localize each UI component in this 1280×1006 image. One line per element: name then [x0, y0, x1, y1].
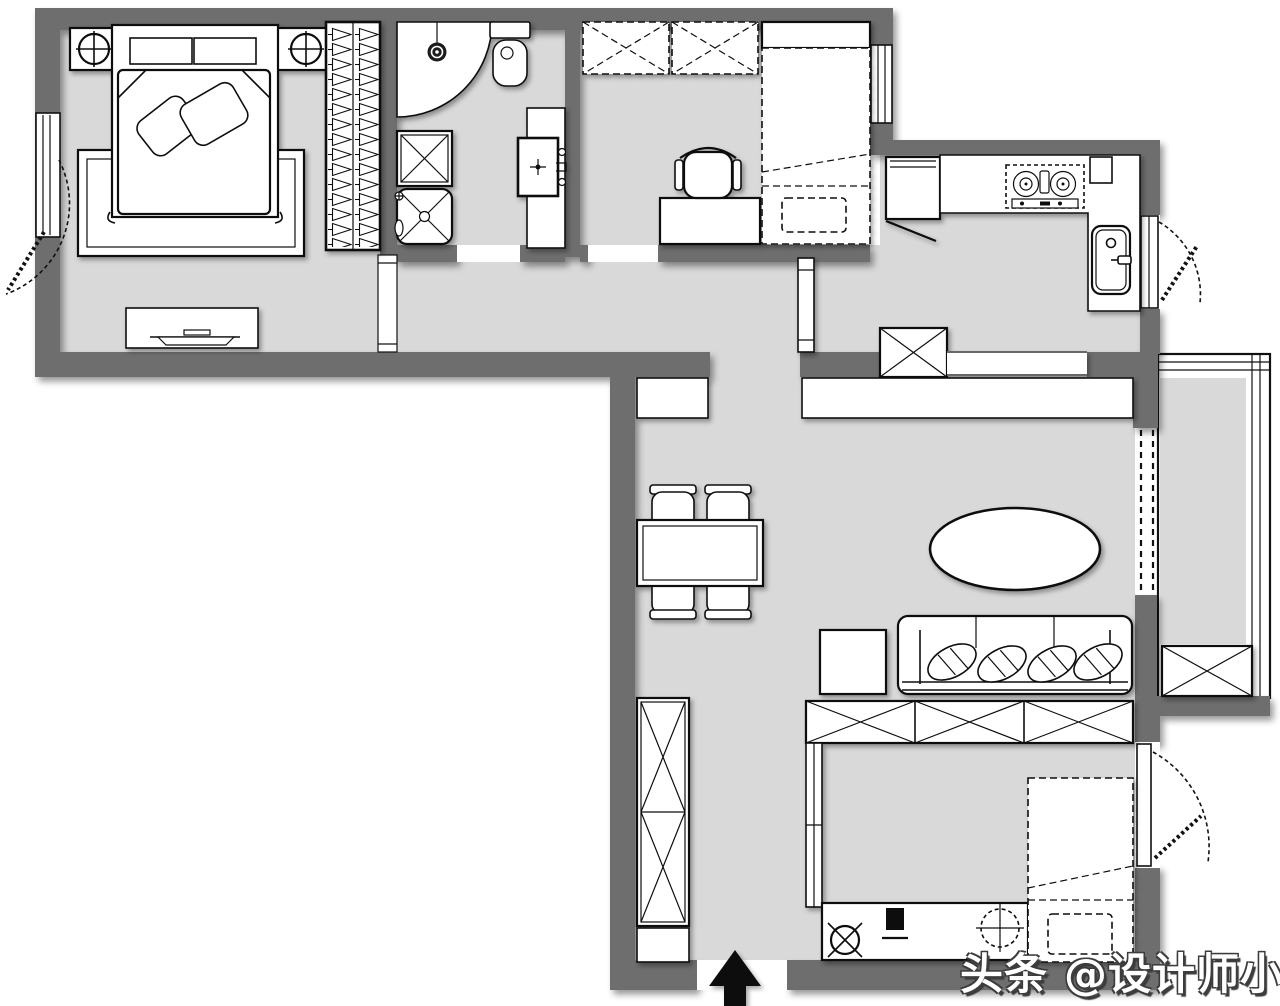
hanger-icons-left [328, 27, 352, 247]
cabinet-top-left [637, 378, 708, 418]
wall-bottom-left [610, 960, 697, 990]
headboard-panel-left [130, 38, 192, 64]
side-table [820, 630, 886, 694]
sofa [898, 616, 1132, 694]
stove-display [1040, 202, 1050, 206]
wall-bedroom2-bottom-right [658, 245, 870, 262]
wall-kitchen-bottom-left [800, 352, 880, 377]
faucet-knob-top [559, 149, 566, 156]
dining-table [637, 520, 763, 586]
balcony-floor [1160, 378, 1246, 644]
wall-bath-bottom-left [397, 245, 457, 262]
bed2-headboard [762, 22, 870, 48]
toilet-icon [493, 40, 527, 86]
wall-kitchen-right-lower [1140, 309, 1160, 354]
balcony [1162, 646, 1252, 696]
monitor-icon [886, 908, 904, 930]
floor-plan-svg [0, 0, 1280, 1006]
drain-icon [395, 220, 403, 236]
wall-kitchen-bottom-right [1087, 352, 1135, 377]
shower-head-center [435, 50, 439, 54]
washing-machine-door [420, 212, 430, 222]
single-bed-3 [1028, 778, 1133, 962]
wall-kitchen-top [870, 140, 1160, 155]
wall-lower-left [610, 352, 635, 990]
master-window [36, 113, 60, 237]
wall-master-bath [380, 8, 397, 257]
bedroom3-door [1137, 744, 1151, 866]
bedroom3-door-swing-arc [1153, 752, 1209, 862]
master-door-opening [378, 255, 397, 352]
toilet-tank [490, 22, 530, 38]
kitchen-door-panel [798, 258, 814, 352]
floor-plan-page: 头条 @设计师小晨 [0, 0, 1280, 1006]
wall-living-balcony [1135, 595, 1157, 698]
toilet-flush [501, 47, 513, 59]
burner-dot [1025, 183, 1028, 186]
kitchen-door-swing-hatch [1162, 246, 1197, 300]
wall-hall-bottom [35, 352, 710, 377]
faucet-knob-bottom [559, 179, 566, 186]
fridge [886, 157, 940, 219]
duvet [118, 70, 270, 214]
wall-lower-right-upper [1135, 698, 1160, 744]
wall-balcony-stub [1133, 352, 1158, 428]
wall-bath-bedroom2 [565, 8, 580, 257]
tv-base [184, 330, 210, 335]
closet [326, 22, 380, 250]
single-bed-2 [762, 48, 870, 244]
office-chair-2 [675, 148, 741, 198]
burner-dot [1062, 183, 1065, 186]
entry-bench [637, 928, 689, 962]
balcony-sliding-door [1141, 430, 1153, 595]
tv-cabinet-strip [806, 701, 1133, 743]
wall-kitchen-right-upper [1140, 155, 1160, 215]
watermark: 头条 @设计师小晨 [960, 940, 1280, 1002]
cabinet-top-right [802, 378, 1133, 418]
faucet-icon [536, 165, 541, 170]
hanger-icons-right [355, 27, 379, 247]
bedroom2-door-opening [588, 245, 658, 262]
sink-faucet-icon [1118, 256, 1131, 264]
bedroom3-door-swing-hatch [1155, 816, 1201, 858]
stove-center-tray [1040, 171, 1049, 193]
wall-bedroom2-bottom-left [580, 245, 588, 262]
desk-2 [660, 198, 760, 244]
kitchen-pass-threshold [947, 351, 1087, 376]
headboard-panel-right [194, 38, 256, 64]
stove-knob [1020, 202, 1024, 206]
tv-icon [158, 337, 234, 345]
coffee-table [930, 508, 1100, 590]
kitchen-corner-unit [1090, 157, 1112, 183]
kitchen-door-swing-arc [1159, 222, 1200, 303]
bathroom-door-opening [457, 245, 520, 262]
stove-knob [1058, 202, 1062, 206]
bedroom2-window [871, 45, 892, 123]
